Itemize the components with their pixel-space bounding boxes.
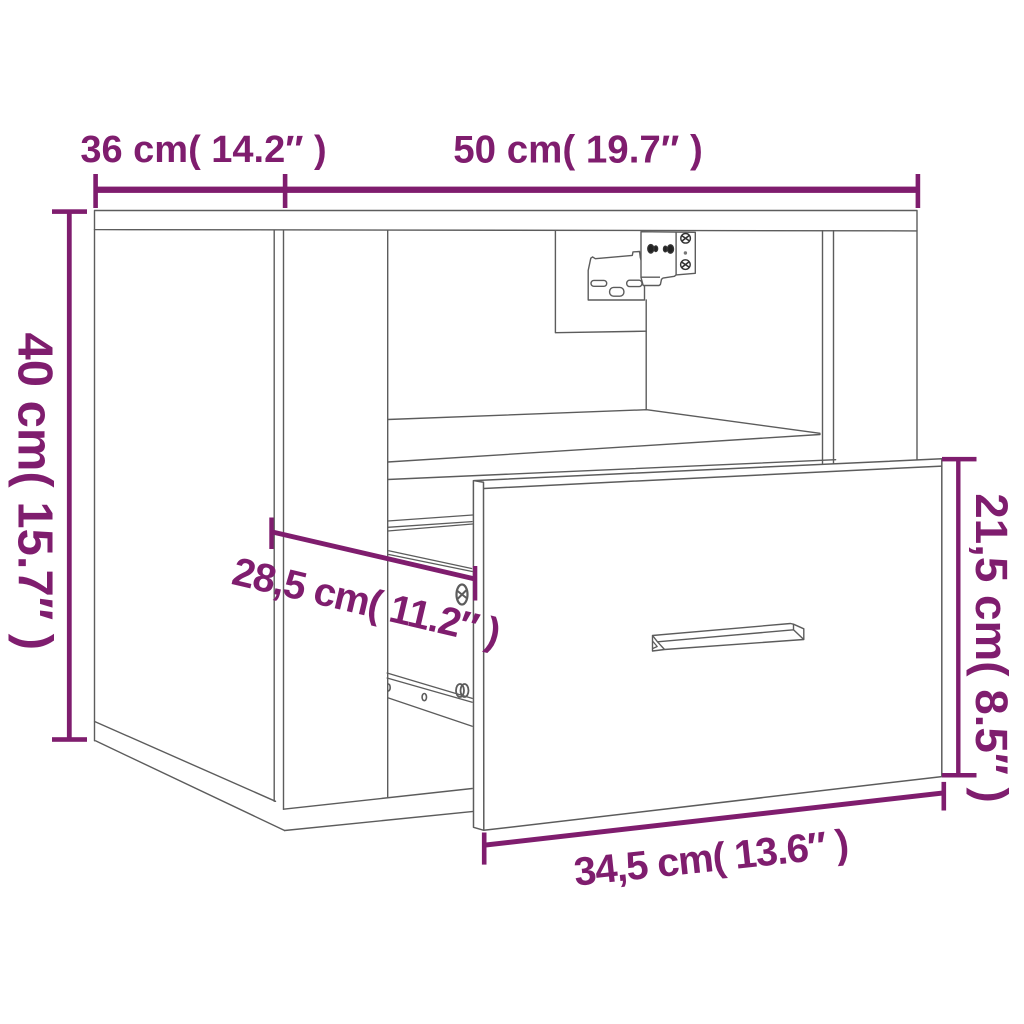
svg-text:40 cm( 15.7″ ): 40 cm( 15.7″ ) [8, 332, 62, 650]
svg-text:36 cm( 14.2″ ): 36 cm( 14.2″ ) [80, 129, 326, 171]
svg-text:21,5 cm( 8.5″ ): 21,5 cm( 8.5″ ) [966, 493, 1017, 803]
svg-text:50 cm( 19.7″ ): 50 cm( 19.7″ ) [453, 129, 703, 172]
